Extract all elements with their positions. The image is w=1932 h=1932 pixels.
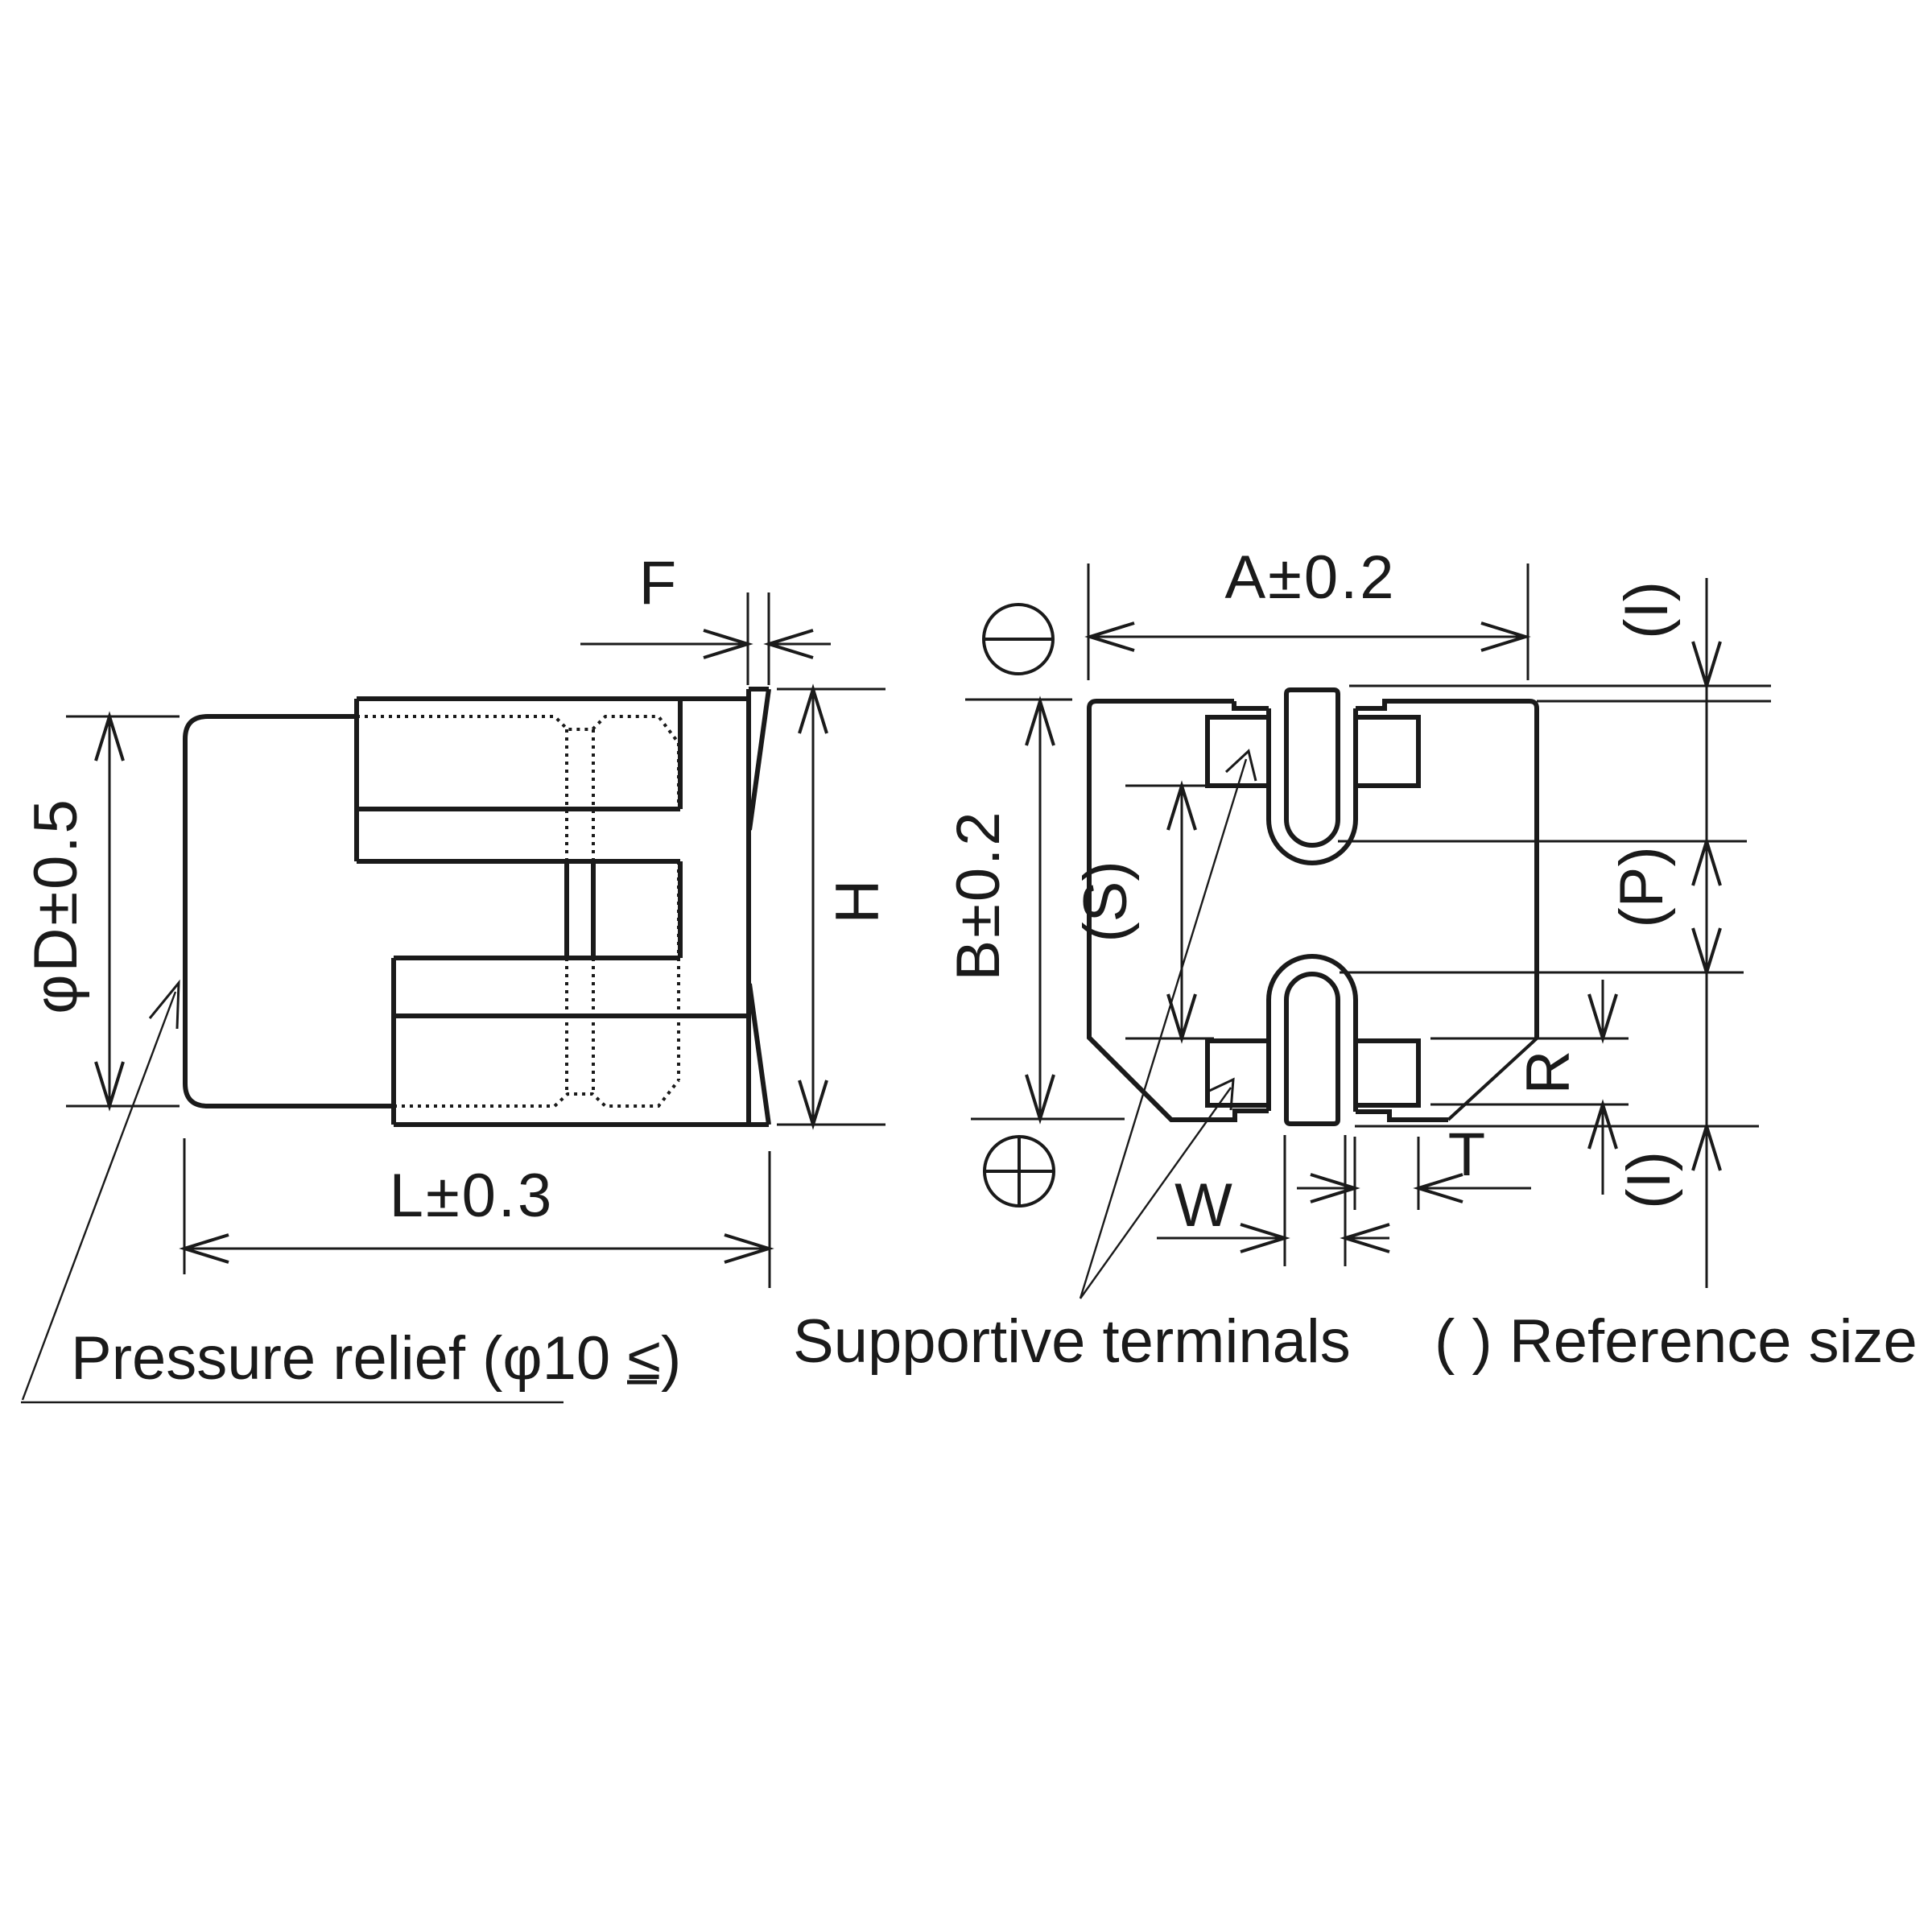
svg-text:F: F (639, 549, 676, 617)
svg-text:Pressure relief (φ10 ≤): Pressure relief (φ10 ≤) (71, 1324, 681, 1393)
svg-text:T: T (1448, 1121, 1485, 1189)
svg-text:( ) Reference size: ( ) Reference size (1435, 1307, 1918, 1376)
svg-text:R: R (1514, 1051, 1583, 1095)
svg-text:B±0.2: B±0.2 (944, 809, 1013, 980)
svg-text:φD±0.5: φD±0.5 (22, 797, 90, 1014)
svg-text:H: H (824, 880, 892, 924)
svg-text:(I): (I) (1612, 581, 1681, 639)
svg-text:(I): (I) (1615, 1151, 1683, 1209)
svg-text:(S): (S) (1071, 861, 1140, 942)
svg-text:Supportive terminals: Supportive terminals (793, 1307, 1351, 1376)
svg-text:A±0.2: A±0.2 (1224, 543, 1396, 612)
svg-text:(P): (P) (1608, 846, 1676, 927)
svg-text:L±0.3: L±0.3 (390, 1162, 555, 1230)
svg-text:W: W (1174, 1171, 1232, 1240)
